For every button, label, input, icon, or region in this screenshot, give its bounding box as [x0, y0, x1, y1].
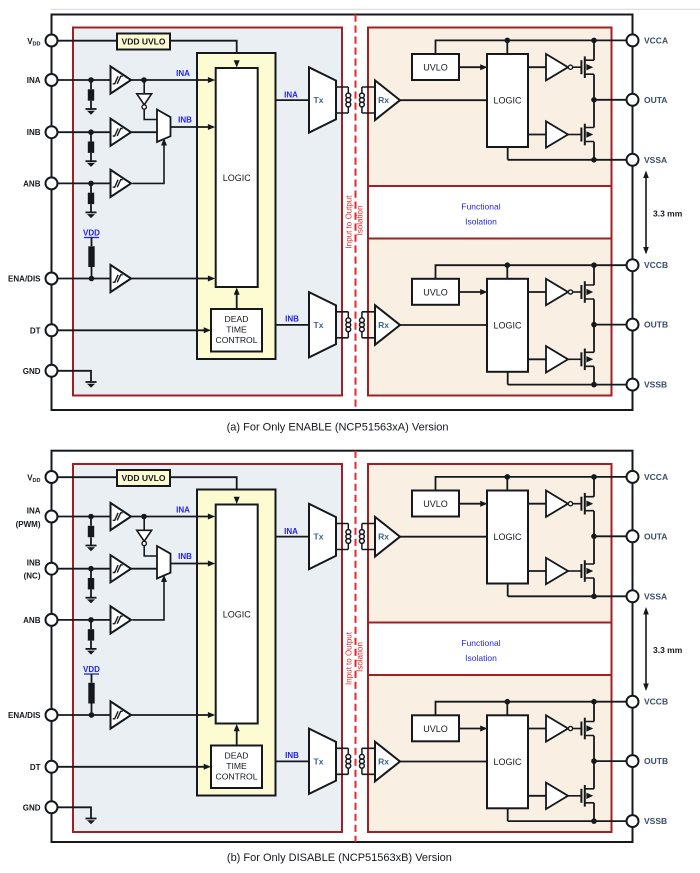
svg-text:(NC): (NC) [24, 572, 41, 581]
svg-text:INB: INB [27, 559, 41, 568]
svg-text:(a) For Only ENABLE (NCP51563x: (a) For Only ENABLE (NCP51563xA) Version [227, 422, 449, 434]
svg-text:INA: INA [27, 76, 41, 85]
svg-text:INB: INB [27, 128, 41, 137]
svg-text:(PWM): (PWM) [16, 520, 41, 529]
svg-text:INA: INA [27, 507, 41, 516]
svg-text:(b) For Only DISABLE (NCP51563: (b) For Only DISABLE (NCP51563xB) Versio… [227, 852, 452, 864]
